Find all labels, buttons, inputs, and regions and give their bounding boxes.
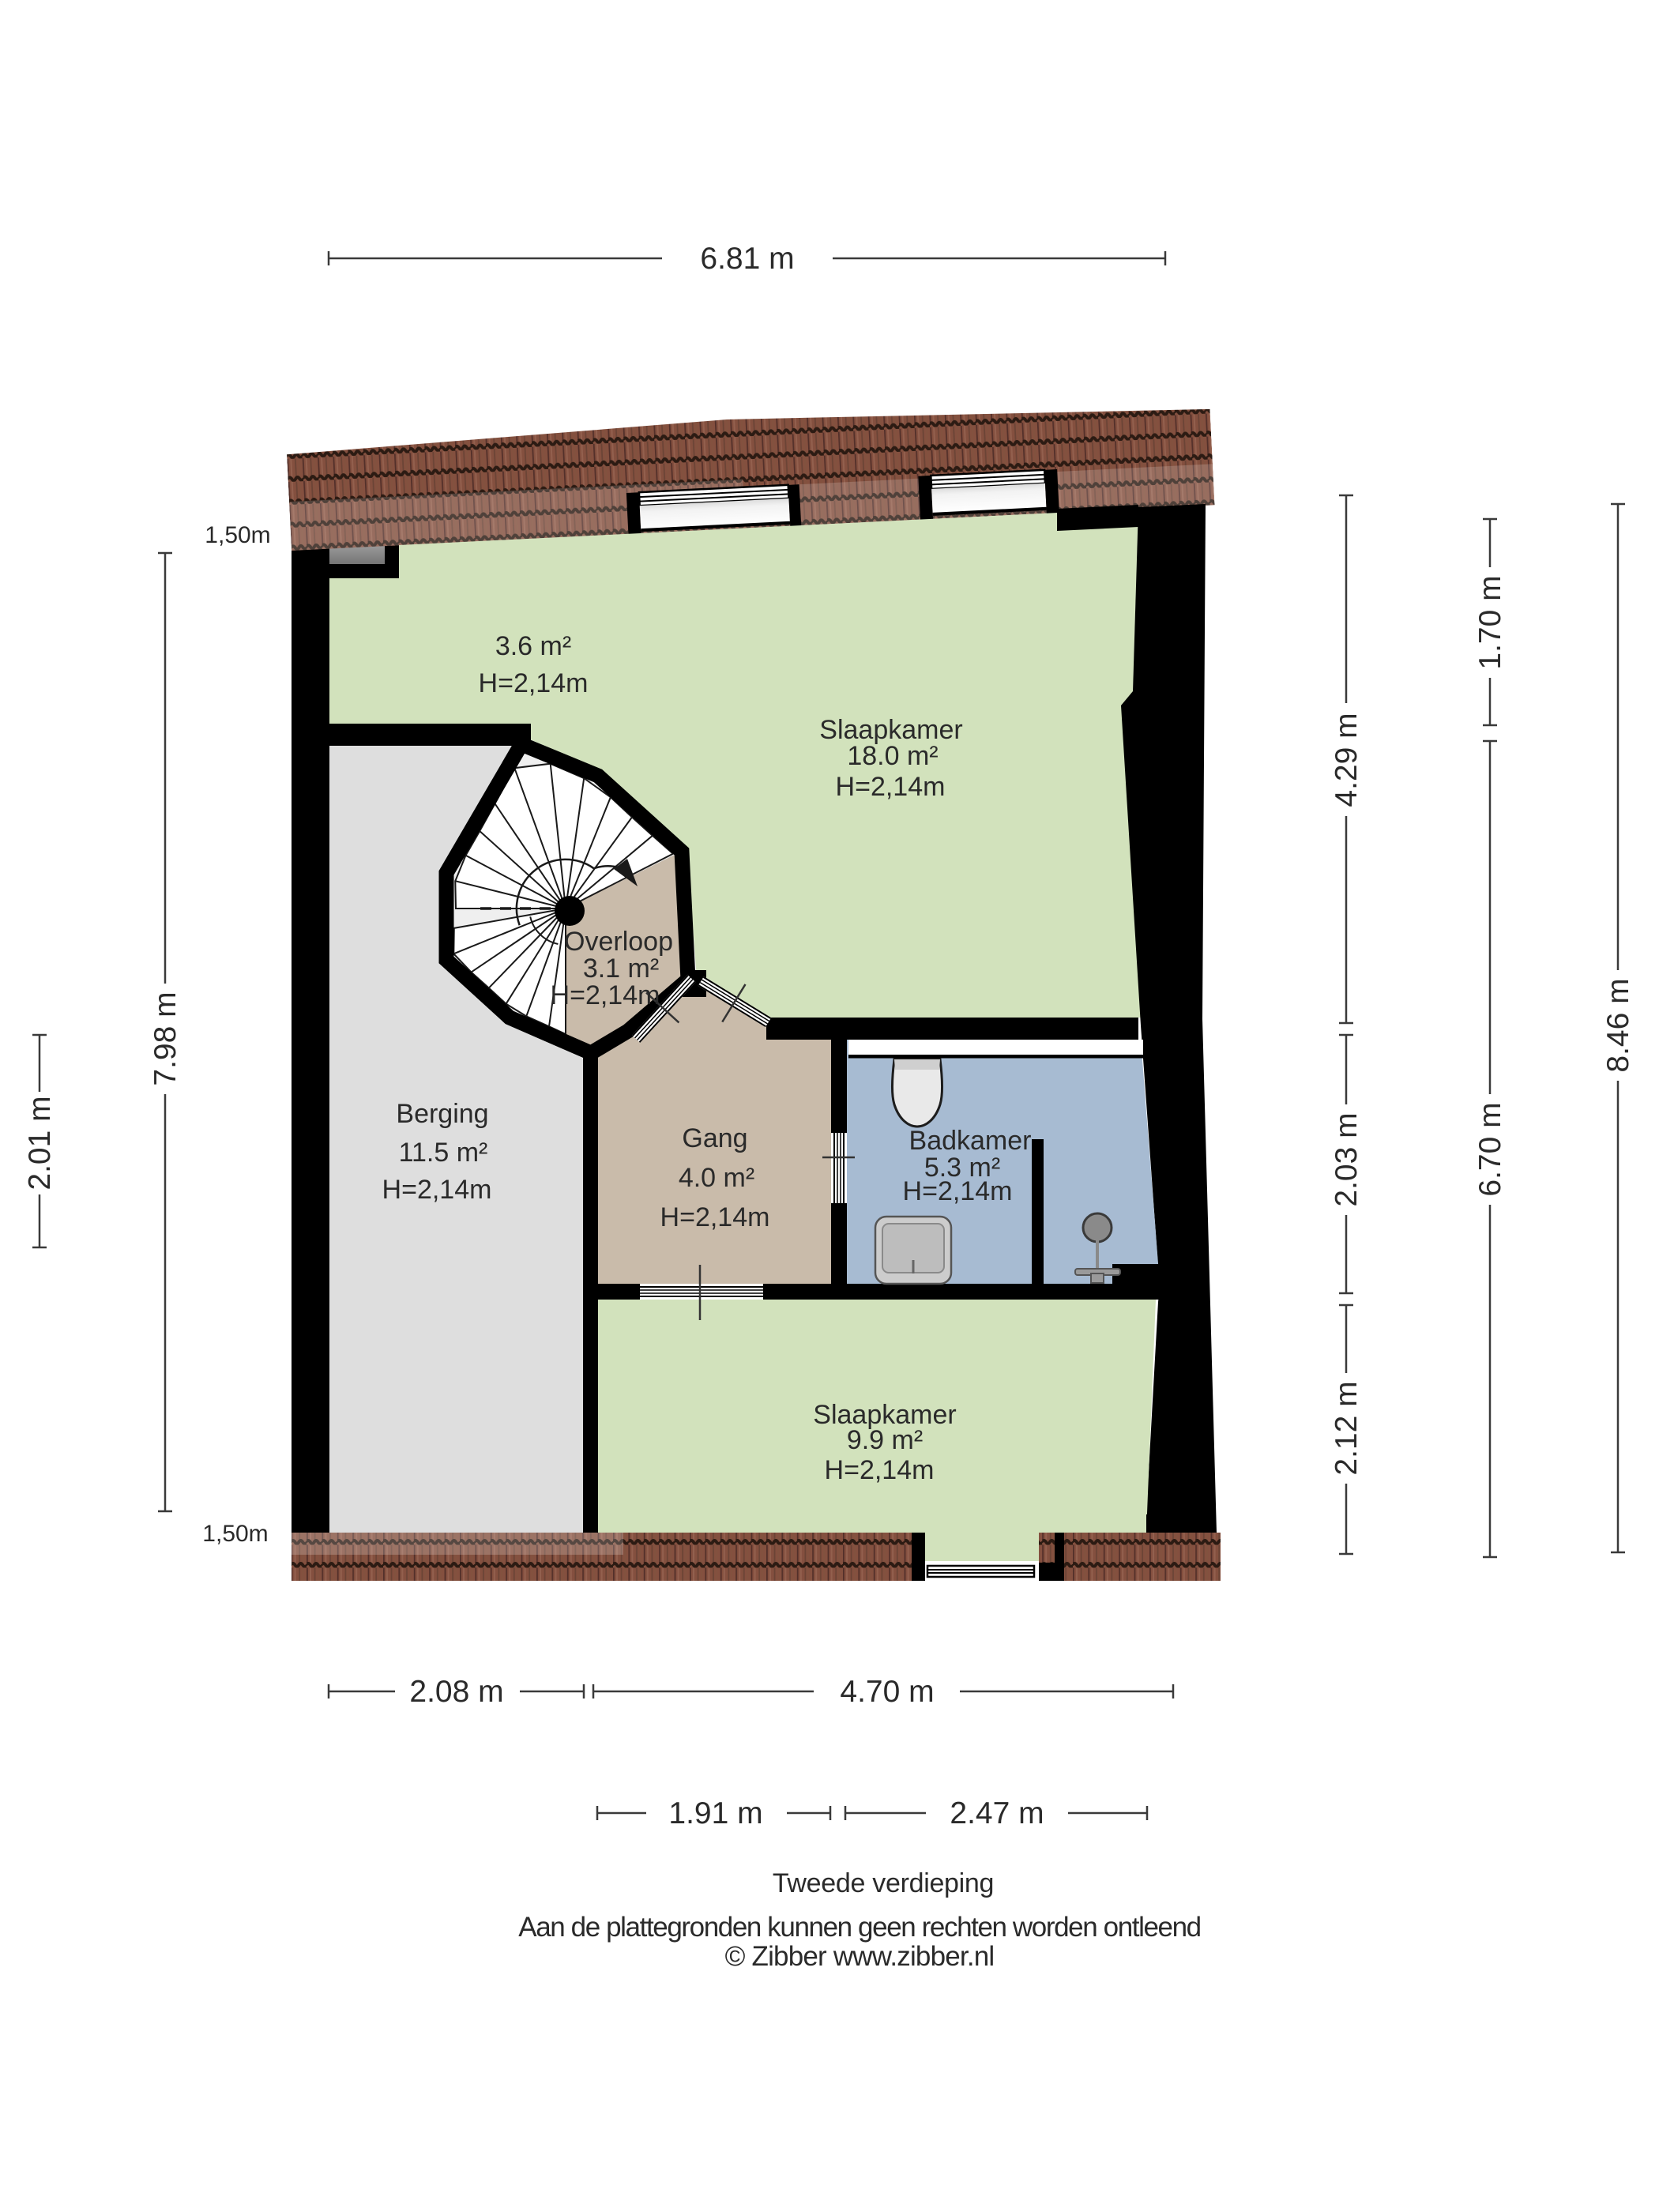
svg-text:2.08 m: 2.08 m bbox=[409, 1675, 503, 1709]
svg-text:H=2,14m: H=2,14m bbox=[479, 668, 589, 698]
svg-text:2.03 m: 2.03 m bbox=[1330, 1112, 1364, 1206]
svg-text:Berging: Berging bbox=[396, 1099, 488, 1129]
svg-text:1.70 m: 1.70 m bbox=[1473, 575, 1507, 669]
svg-text:4.70 m: 4.70 m bbox=[840, 1675, 934, 1709]
svg-text:11.5 m²: 11.5 m² bbox=[399, 1138, 488, 1168]
svg-text:© Zibber www.zibber.nl: © Zibber www.zibber.nl bbox=[725, 1941, 995, 1972]
svg-text:3.1 m²: 3.1 m² bbox=[583, 954, 659, 984]
svg-text:2.47 m: 2.47 m bbox=[950, 1796, 1044, 1830]
svg-text:1.91 m: 1.91 m bbox=[668, 1796, 762, 1830]
svg-text:2.12 m: 2.12 m bbox=[1330, 1381, 1364, 1475]
svg-text:1,50m: 1,50m bbox=[202, 1521, 268, 1547]
svg-text:18.0 m²: 18.0 m² bbox=[847, 741, 938, 771]
svg-text:Gang: Gang bbox=[682, 1123, 747, 1153]
svg-text:H=2,14m: H=2,14m bbox=[836, 772, 946, 802]
svg-text:4.29 m: 4.29 m bbox=[1330, 713, 1364, 807]
svg-text:Badkamer: Badkamer bbox=[909, 1126, 1032, 1156]
svg-text:1,50m: 1,50m bbox=[205, 522, 270, 548]
svg-text:Tweede verdieping: Tweede verdieping bbox=[773, 1868, 994, 1898]
svg-text:Overloop: Overloop bbox=[564, 927, 673, 957]
svg-text:7.98 m: 7.98 m bbox=[149, 991, 182, 1085]
svg-text:4.0 m²: 4.0 m² bbox=[679, 1163, 754, 1193]
svg-text:Aan de plattegronden kunnen ge: Aan de plattegronden kunnen geen rechten… bbox=[518, 1912, 1200, 1943]
svg-text:6.81 m: 6.81 m bbox=[700, 242, 794, 276]
svg-text:H=2,14m: H=2,14m bbox=[825, 1455, 935, 1485]
svg-text:H=2,14m: H=2,14m bbox=[382, 1175, 492, 1205]
svg-text:2.01 m: 2.01 m bbox=[23, 1096, 57, 1190]
svg-text:H=2,14m: H=2,14m bbox=[551, 980, 660, 1010]
svg-text:9.9 m²: 9.9 m² bbox=[847, 1425, 923, 1455]
svg-text:H=2,14m: H=2,14m bbox=[903, 1176, 1013, 1206]
svg-text:3.6 m²: 3.6 m² bbox=[495, 631, 571, 661]
svg-text:6.70 m: 6.70 m bbox=[1473, 1102, 1507, 1196]
svg-text:8.46 m: 8.46 m bbox=[1601, 978, 1635, 1072]
svg-text:H=2,14m: H=2,14m bbox=[660, 1202, 770, 1232]
